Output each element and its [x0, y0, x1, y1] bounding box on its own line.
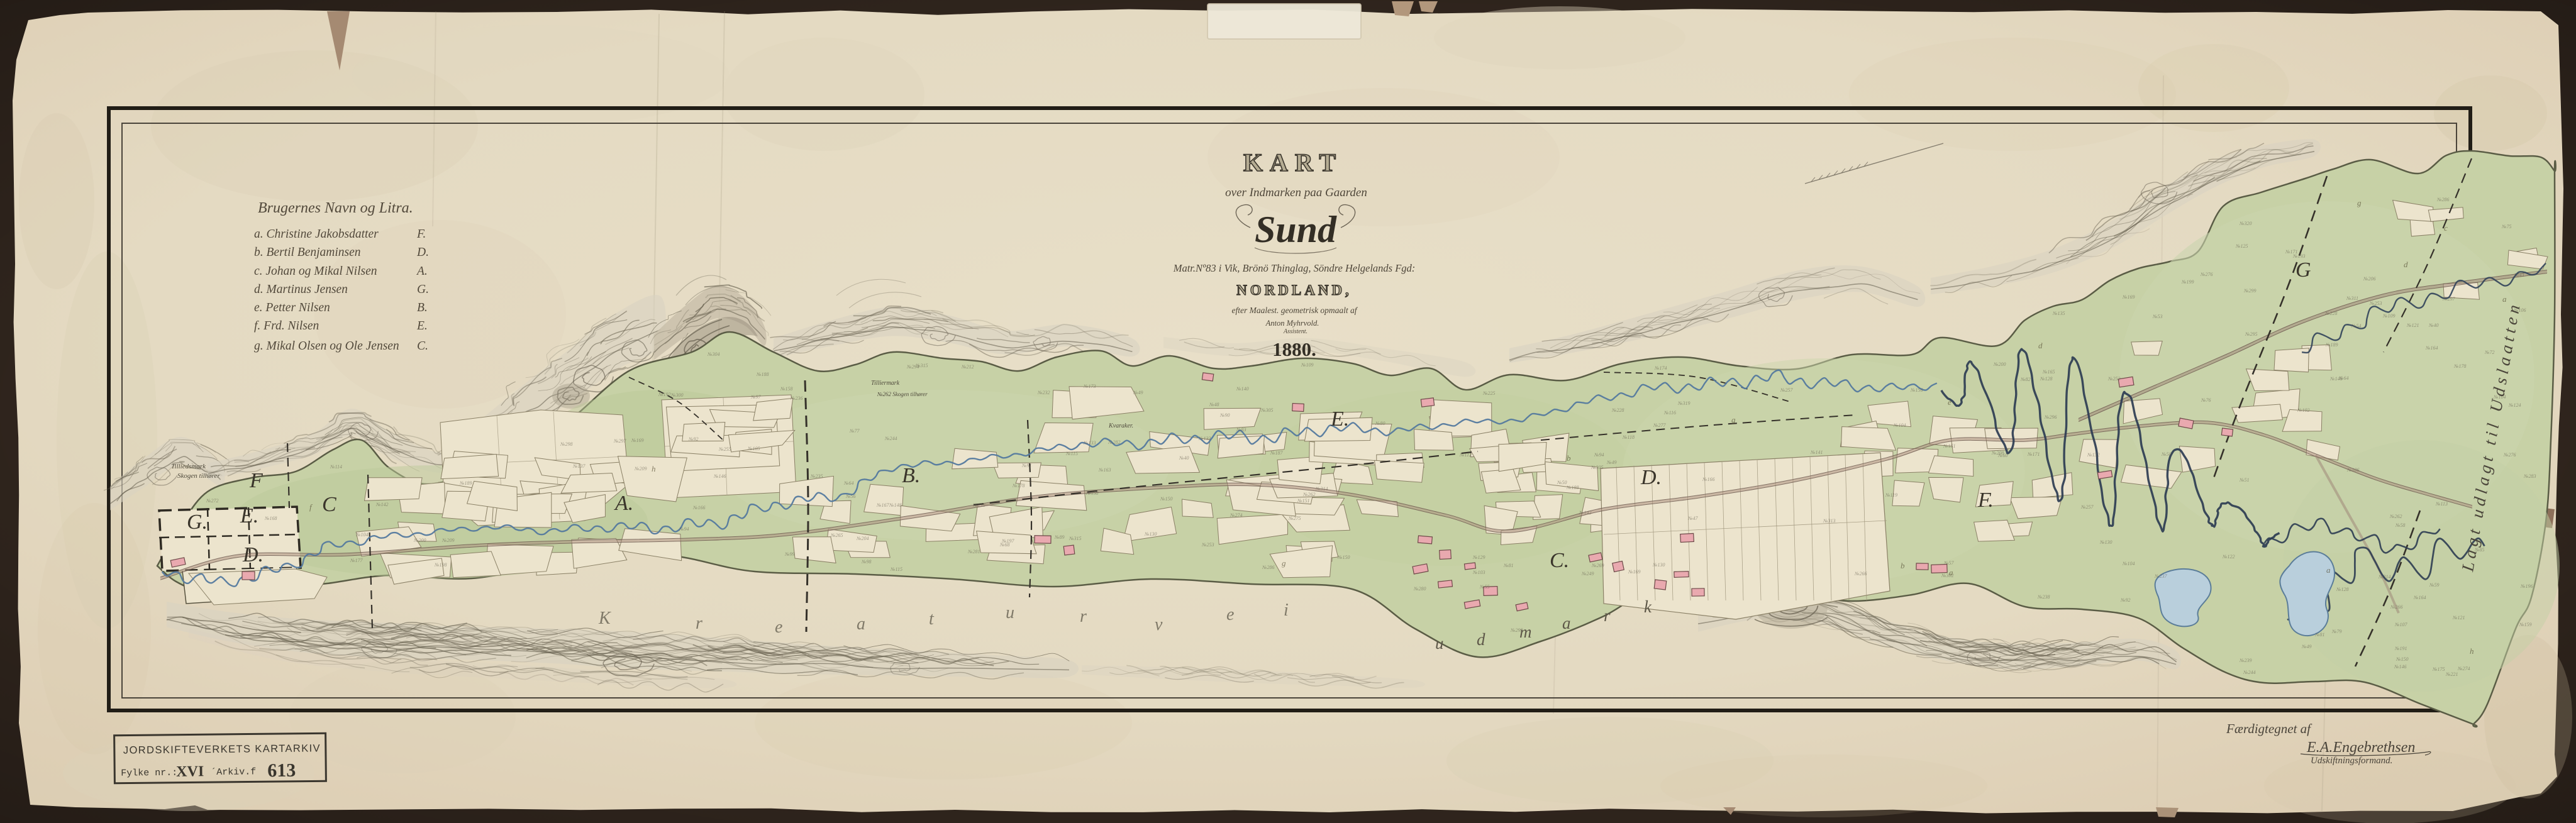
- svg-text:Udskiftningsformand.: Udskiftningsformand.: [2311, 756, 2392, 766]
- svg-text:t: t: [929, 609, 935, 629]
- svg-text:№311: №311: [2346, 296, 2358, 301]
- svg-text:№98: №98: [861, 559, 872, 565]
- svg-text:№191: №191: [2394, 646, 2407, 651]
- svg-text:№94: №94: [1594, 452, 1604, 458]
- svg-text:№81: №81: [1503, 563, 1514, 568]
- svg-text:№150: №150: [2396, 656, 2409, 662]
- svg-text:№196: №196: [2520, 583, 2533, 589]
- svg-text:b: b: [1567, 453, 1571, 463]
- svg-text:№53: №53: [2152, 314, 2163, 319]
- svg-text:№169: №169: [1628, 569, 1641, 575]
- svg-text:g: g: [2357, 198, 2362, 207]
- svg-text:№137: №137: [572, 463, 586, 469]
- svg-text:e: e: [775, 617, 782, 637]
- svg-text:№104: №104: [355, 532, 369, 538]
- svg-text:№192: №192: [658, 392, 671, 397]
- svg-text:№104: №104: [2122, 561, 2135, 566]
- svg-text:№164: №164: [2425, 345, 2438, 351]
- svg-text:G.: G.: [187, 511, 208, 534]
- svg-text:№204: №204: [856, 536, 869, 541]
- svg-text:№298: №298: [560, 441, 573, 447]
- svg-text:№97: №97: [750, 394, 762, 400]
- svg-text:B.: B.: [417, 301, 428, 314]
- svg-text:№238: №238: [2037, 594, 2050, 600]
- svg-text:r: r: [1604, 606, 1611, 625]
- svg-text:r: r: [696, 614, 702, 633]
- svg-text:№235: №235: [810, 473, 823, 479]
- svg-text:№159: №159: [2519, 622, 2532, 627]
- svg-text:№200: №200: [413, 538, 426, 543]
- svg-text:№43: №43: [2514, 272, 2524, 278]
- svg-text:KART: KART: [1243, 148, 1343, 177]
- svg-text:№51: №51: [2239, 477, 2250, 483]
- svg-text:№121: №121: [2452, 615, 2465, 621]
- svg-text:C: C: [322, 493, 336, 516]
- svg-text:NORDLAND,: NORDLAND,: [1236, 282, 1352, 298]
- svg-text:№187: №187: [1270, 450, 1284, 456]
- svg-text:№119: №119: [1885, 492, 1897, 498]
- svg-text:e: e: [1948, 397, 1951, 407]
- svg-text:g. Mikal Olsen og Ole Jensen: g. Mikal Olsen og Ole Jensen: [254, 340, 399, 353]
- svg-text:C.: C.: [417, 340, 428, 353]
- svg-text:№54: №54: [2351, 323, 2362, 329]
- svg-text:№128: №128: [2040, 376, 2053, 382]
- svg-text:Tilliermark: Tilliermark: [871, 380, 900, 387]
- svg-text:№296: №296: [2044, 414, 2057, 420]
- svg-text:C.: C.: [1550, 549, 1569, 572]
- svg-text:a: a: [1562, 614, 1571, 632]
- svg-text:№158: №158: [1085, 490, 1099, 496]
- svg-text:№299: №299: [2243, 288, 2257, 294]
- svg-text:№277: №277: [1653, 423, 1667, 428]
- svg-text:№105: №105: [747, 446, 760, 451]
- svg-text:№173: №173: [1083, 384, 1096, 389]
- svg-text:№142: №142: [375, 502, 389, 507]
- svg-text:№104: №104: [1893, 423, 1906, 428]
- svg-text:№122: №122: [2222, 554, 2235, 560]
- svg-text:№133: №133: [1198, 436, 1211, 441]
- svg-text:№115: №115: [1065, 451, 1078, 456]
- svg-text:u: u: [1435, 634, 1444, 653]
- svg-text:№99: №99: [784, 551, 795, 557]
- svg-text:№72: №72: [2484, 350, 2495, 355]
- svg-text:№239: №239: [2239, 658, 2252, 663]
- svg-text:№252: №252: [2107, 376, 2121, 382]
- svg-text:№169: №169: [631, 438, 644, 443]
- svg-text:№58: №58: [2395, 522, 2406, 528]
- svg-text:№146: №146: [2394, 664, 2407, 670]
- svg-text:№171: №171: [2285, 249, 2298, 255]
- svg-text:№103: №103: [1472, 570, 1485, 575]
- svg-text:e: e: [1226, 605, 1234, 624]
- svg-text:g: g: [1731, 415, 1736, 424]
- svg-text:B.: B.: [902, 464, 920, 487]
- svg-text:№146: №146: [2329, 376, 2343, 382]
- svg-text:№236: №236: [790, 395, 803, 401]
- svg-text:№294: №294: [906, 364, 919, 370]
- svg-text:F: F: [249, 469, 264, 492]
- svg-text:№77: №77: [849, 428, 860, 434]
- svg-text:№128: №128: [2336, 587, 2349, 592]
- svg-text:E.: E.: [416, 319, 428, 333]
- svg-text:№200: №200: [1993, 362, 2006, 367]
- svg-text:№91: №91: [1021, 463, 1032, 468]
- svg-text:g: g: [1282, 558, 1286, 568]
- svg-text:´Arkiv.f: ´Arkiv.f: [211, 766, 256, 778]
- svg-text:A.: A.: [416, 265, 428, 278]
- svg-text:№107: №107: [2394, 622, 2408, 627]
- svg-text:№208: №208: [1991, 450, 2004, 456]
- svg-text:№314: №314: [2378, 574, 2391, 580]
- svg-text:№49: №49: [1606, 460, 1617, 465]
- svg-text:№189: №189: [459, 480, 472, 486]
- svg-text:№109: №109: [1301, 362, 1314, 368]
- svg-text:№82: №82: [2020, 377, 2031, 382]
- svg-text:E.: E.: [240, 504, 258, 527]
- svg-text:№59: №59: [2429, 582, 2440, 588]
- svg-text:№57: №57: [1943, 560, 1955, 566]
- svg-text:№92: №92: [688, 436, 699, 442]
- svg-text:№206: №206: [2363, 276, 2376, 282]
- svg-text:№197: №197: [1001, 538, 1015, 544]
- svg-text:№272: №272: [206, 498, 219, 504]
- svg-text:№266: №266: [2390, 604, 2403, 610]
- svg-text:№80: №80: [1375, 421, 1385, 426]
- svg-text:№116: №116: [1663, 410, 1676, 416]
- svg-text:№130: №130: [2099, 539, 2112, 545]
- svg-text:d. Martinus Jensen: d. Martinus Jensen: [254, 283, 348, 296]
- svg-text:№282: №282: [1108, 439, 1121, 445]
- svg-text:№276: №276: [2503, 452, 2516, 458]
- svg-text:r: r: [1080, 607, 1087, 626]
- svg-text:№133: №133: [1083, 440, 1096, 446]
- svg-text:№48: №48: [1209, 402, 1219, 407]
- svg-text:№237: №237: [2154, 573, 2168, 579]
- svg-text:c. Johan og Mikal Nilsen: c. Johan og Mikal Nilsen: [254, 265, 377, 278]
- svg-text:b. Bertil Benjaminsen: b. Bertil Benjaminsen: [254, 246, 361, 259]
- svg-text:№269: №269: [1591, 563, 1604, 568]
- svg-text:№102: №102: [2297, 407, 2310, 413]
- svg-text:№150: №150: [1160, 496, 1173, 502]
- svg-text:№221: №221: [2445, 671, 2458, 677]
- svg-text:613: 613: [267, 760, 296, 781]
- svg-text:№276: №276: [2200, 272, 2213, 277]
- svg-text:№174: №174: [1654, 365, 1667, 371]
- svg-text:f. Frd. Nilsen: f. Frd. Nilsen: [254, 319, 319, 333]
- svg-text:№140: №140: [1236, 386, 1249, 392]
- svg-text:a. Christine Jakobsdatter: a. Christine Jakobsdatter: [254, 228, 379, 241]
- svg-text:a: a: [1949, 568, 1953, 577]
- svg-text:Færdigtegnet af: Færdigtegnet af: [2226, 721, 2312, 736]
- svg-text:№171: №171: [2027, 451, 2040, 457]
- svg-text:№150: №150: [1337, 555, 1350, 560]
- svg-text:№40: №40: [2428, 323, 2439, 328]
- svg-text:№50: №50: [1557, 480, 1567, 485]
- svg-text:№286: №286: [2436, 197, 2450, 202]
- svg-text:b: b: [1901, 561, 1905, 570]
- svg-text:№198: №198: [434, 562, 447, 568]
- svg-text:№156: №156: [1910, 387, 1923, 393]
- svg-text:№165: №165: [2042, 369, 2055, 375]
- svg-text:№178: №178: [1012, 483, 1025, 489]
- svg-text:№79: №79: [2331, 629, 2342, 634]
- svg-text:№175: №175: [2432, 666, 2445, 672]
- svg-text:Anton Myhrvold.: Anton Myhrvold.: [1265, 319, 1319, 328]
- svg-text:№163: №163: [1098, 467, 1111, 473]
- svg-text:№76: №76: [2201, 397, 2211, 403]
- svg-text:№188: №188: [1566, 485, 1579, 490]
- svg-text:№168: №168: [264, 516, 277, 521]
- svg-text:№130: №130: [1652, 562, 1665, 568]
- svg-text:№313: №313: [1823, 518, 1836, 524]
- svg-text:№274: №274: [1230, 512, 1243, 518]
- svg-text:D.: D.: [1640, 466, 1662, 489]
- svg-text:v: v: [1155, 615, 1163, 634]
- svg-text:№148: №148: [889, 502, 902, 508]
- svg-text:Tilliedsmark: Tilliedsmark: [171, 463, 206, 470]
- svg-text:№253: №253: [1201, 542, 1214, 548]
- svg-text:F.: F.: [1977, 489, 1994, 512]
- svg-text:№212: №212: [961, 364, 974, 370]
- svg-text:№297: №297: [2442, 296, 2456, 302]
- svg-text:№304: №304: [707, 351, 720, 357]
- svg-text:№320: №320: [2239, 221, 2252, 226]
- svg-text:№244: №244: [884, 436, 897, 441]
- svg-text:d: d: [1477, 630, 1485, 649]
- svg-text:№64: №64: [843, 480, 854, 486]
- svg-text:№244: №244: [2243, 670, 2256, 675]
- svg-text:№75: №75: [2501, 224, 2512, 229]
- svg-text:h: h: [652, 464, 656, 473]
- svg-text:№121: №121: [2406, 323, 2419, 328]
- svg-text:№257: №257: [2080, 504, 2094, 510]
- svg-text:№178: №178: [2453, 363, 2467, 369]
- svg-text:№49: №49: [2301, 644, 2312, 649]
- svg-text:№228: №228: [2324, 311, 2338, 316]
- svg-text:№49: №49: [1133, 390, 1143, 395]
- svg-text:№283: №283: [2523, 473, 2536, 479]
- svg-text:u: u: [1006, 603, 1014, 622]
- svg-text:№262 Skogen tilhører: №262 Skogen tilhører: [877, 391, 928, 397]
- svg-text:d: d: [2038, 341, 2043, 350]
- svg-text:№132: №132: [2087, 452, 2100, 458]
- svg-text:Sund: Sund: [1255, 209, 1337, 250]
- svg-text:JORDSKIFTEVERKETS KARTARKIV: JORDSKIFTEVERKETS KARTARKIV: [123, 743, 321, 756]
- svg-text:№136: №136: [972, 502, 985, 508]
- svg-text:№129: №129: [1472, 555, 1485, 560]
- svg-text:№305: №305: [1591, 465, 1604, 470]
- svg-text:№209: №209: [634, 466, 647, 472]
- svg-text:№262: №262: [2389, 514, 2402, 519]
- svg-text:№295: №295: [2245, 331, 2258, 337]
- svg-text:a: a: [857, 614, 865, 634]
- svg-text:№167: №167: [876, 502, 890, 508]
- svg-text:over Indmarken paa Gaarden: over Indmarken paa Gaarden: [1225, 186, 1367, 199]
- svg-text:D.: D.: [242, 543, 264, 566]
- svg-text:D.: D.: [416, 246, 429, 259]
- svg-text:№228: №228: [1611, 407, 1624, 413]
- svg-text:№281: №281: [967, 549, 980, 555]
- svg-text:№305: №305: [1260, 407, 1274, 413]
- svg-text:Fylke nr.:: Fylke nr.:: [121, 768, 177, 779]
- svg-text:№92: №92: [2120, 597, 2131, 603]
- svg-text:№177: №177: [350, 558, 364, 563]
- svg-text:h: h: [2470, 646, 2474, 656]
- svg-text:№90: №90: [1219, 412, 1230, 418]
- svg-text:№55: №55: [1479, 584, 1490, 590]
- svg-text:№146: №146: [713, 473, 726, 479]
- svg-text:№83: №83: [1236, 427, 1246, 433]
- svg-text:A.: A.: [614, 492, 633, 515]
- svg-text:K: K: [598, 609, 611, 628]
- svg-text:d: d: [2404, 260, 2408, 269]
- svg-text:Brugernes Navn og Litra.: Brugernes Navn og Litra.: [258, 200, 413, 216]
- svg-text:Assistent.: Assistent.: [1283, 328, 1307, 335]
- svg-text:№151: №151: [1943, 443, 1956, 449]
- svg-text:№94: №94: [679, 526, 689, 532]
- svg-text:№124: №124: [2508, 402, 2521, 408]
- svg-text:№297: №297: [613, 438, 627, 444]
- svg-text:№166: №166: [1702, 477, 1715, 482]
- svg-text:№130: №130: [1144, 531, 1157, 537]
- svg-text:Matr.Nº83 i Vik, Brönö Thingla: Matr.Nº83 i Vik, Brönö Thinglag, Söndre …: [1173, 262, 1416, 274]
- svg-text:№265: №265: [830, 533, 843, 538]
- svg-text:1880.: 1880.: [1272, 338, 1316, 360]
- svg-text:№253: №253: [2369, 301, 2382, 306]
- svg-text:m: m: [1519, 622, 1532, 641]
- svg-text:№262: №262: [1302, 492, 1316, 497]
- svg-text:№125: №125: [2235, 243, 2248, 249]
- svg-text:a: a: [2326, 565, 2331, 575]
- svg-text:E.A.Engebrethsen: E.A.Engebrethsen: [2306, 739, 2415, 756]
- svg-text:№81: №81: [2314, 632, 2325, 638]
- svg-text:E.: E.: [1330, 407, 1349, 431]
- svg-text:№274: №274: [2457, 666, 2470, 671]
- svg-text:k: k: [1644, 597, 1652, 616]
- svg-text:№109: №109: [2382, 313, 2396, 319]
- svg-text:№209: №209: [441, 538, 455, 543]
- svg-text:№106: №106: [2346, 467, 2360, 473]
- svg-text:№314: №314: [1315, 486, 1328, 492]
- svg-text:№89: №89: [1054, 534, 1065, 540]
- svg-text:№315: №315: [1069, 536, 1082, 541]
- svg-text:№280: №280: [1413, 586, 1426, 592]
- svg-text:№47: №47: [1687, 516, 1699, 521]
- svg-text:№169: №169: [2122, 294, 2135, 300]
- svg-text:№113: №113: [2435, 501, 2448, 507]
- svg-text:№118: №118: [1622, 434, 1635, 440]
- svg-text:№300: №300: [670, 392, 684, 398]
- svg-text:e. Petter Nilsen: e. Petter Nilsen: [254, 301, 330, 314]
- svg-text:№188: №188: [756, 372, 769, 377]
- svg-text:G: G: [2296, 258, 2311, 282]
- svg-text:№319: №319: [1677, 400, 1690, 406]
- svg-text:№286: №286: [1262, 565, 1275, 570]
- svg-text:№266: №266: [1854, 571, 1867, 577]
- svg-text:№257: №257: [1780, 387, 1794, 393]
- svg-text:XVI: XVI: [176, 763, 204, 780]
- svg-text:№164: №164: [2413, 595, 2426, 600]
- svg-text:№275: №275: [1288, 516, 1301, 521]
- svg-text:№166: №166: [692, 505, 706, 511]
- svg-text:i: i: [1284, 600, 1289, 620]
- svg-text:efter Maalest. geometrisk opma: efter Maalest. geometrisk opmaalt af: [1231, 306, 1358, 315]
- svg-text:F.: F.: [416, 228, 426, 241]
- svg-text:№40: №40: [1179, 455, 1189, 461]
- svg-text:№114: №114: [330, 464, 342, 470]
- svg-text:№199: №199: [2181, 279, 2194, 285]
- svg-text:G.: G.: [417, 283, 429, 296]
- svg-text:№151: №151: [1297, 498, 1310, 504]
- svg-text:Kvaraker.: Kvaraker.: [1108, 423, 1133, 429]
- svg-text:№225: №225: [1482, 390, 1496, 396]
- svg-text:№232: №232: [1037, 390, 1050, 395]
- svg-text:№249: №249: [1581, 571, 1594, 577]
- svg-text:№158: №158: [780, 386, 793, 392]
- svg-text:№135: №135: [2052, 311, 2065, 316]
- svg-text:№115: №115: [890, 566, 902, 572]
- svg-text:№142: №142: [1579, 510, 1592, 516]
- svg-text:№56: №56: [845, 494, 856, 499]
- svg-text:№50: №50: [2161, 451, 2172, 457]
- svg-text:№112: №112: [1459, 452, 1472, 458]
- svg-text:Skogen tilhører: Skogen tilhører: [177, 472, 220, 480]
- svg-text:№255: №255: [718, 446, 731, 452]
- svg-text:c: c: [2444, 223, 2448, 233]
- svg-text:№189: №189: [2325, 342, 2338, 348]
- svg-text:№141: №141: [1810, 450, 1823, 455]
